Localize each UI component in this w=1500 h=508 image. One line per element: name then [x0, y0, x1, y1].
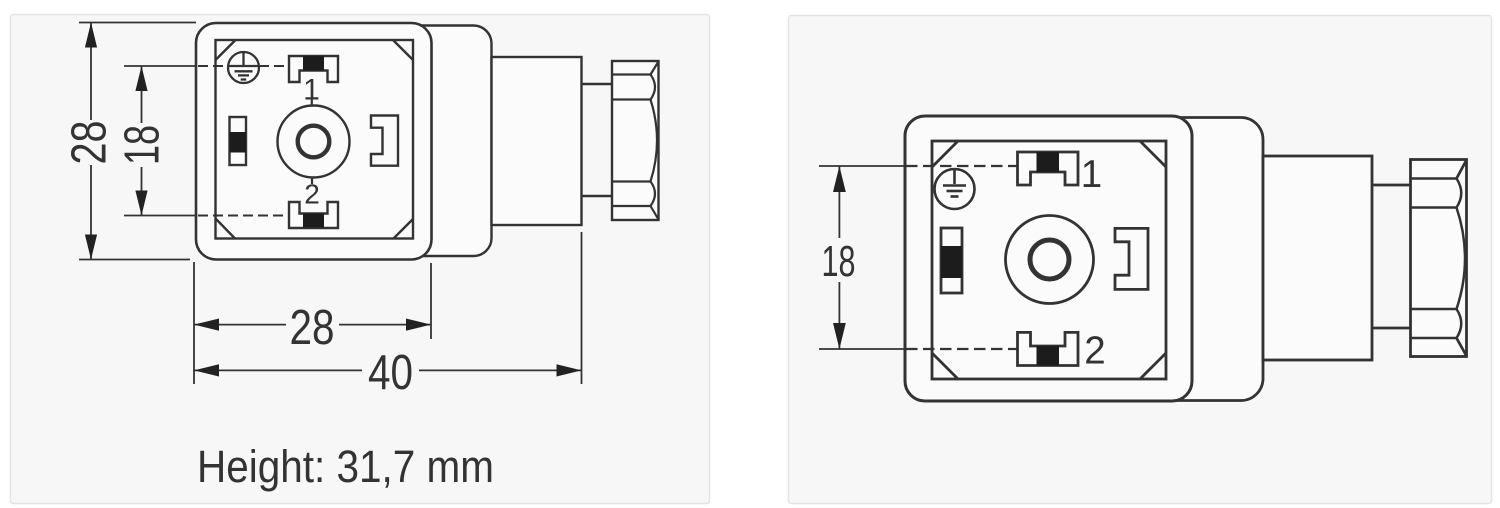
svg-text:18: 18 [822, 237, 856, 286]
svg-text:28: 28 [290, 301, 335, 355]
svg-text:28: 28 [63, 121, 117, 165]
svg-text:40: 40 [368, 346, 413, 400]
svg-text:1: 1 [1081, 153, 1102, 196]
svg-text:Height: 31,7 mm: Height: 31,7 mm [197, 441, 494, 492]
svg-text:18: 18 [116, 125, 170, 165]
svg-text:2: 2 [1084, 330, 1105, 373]
